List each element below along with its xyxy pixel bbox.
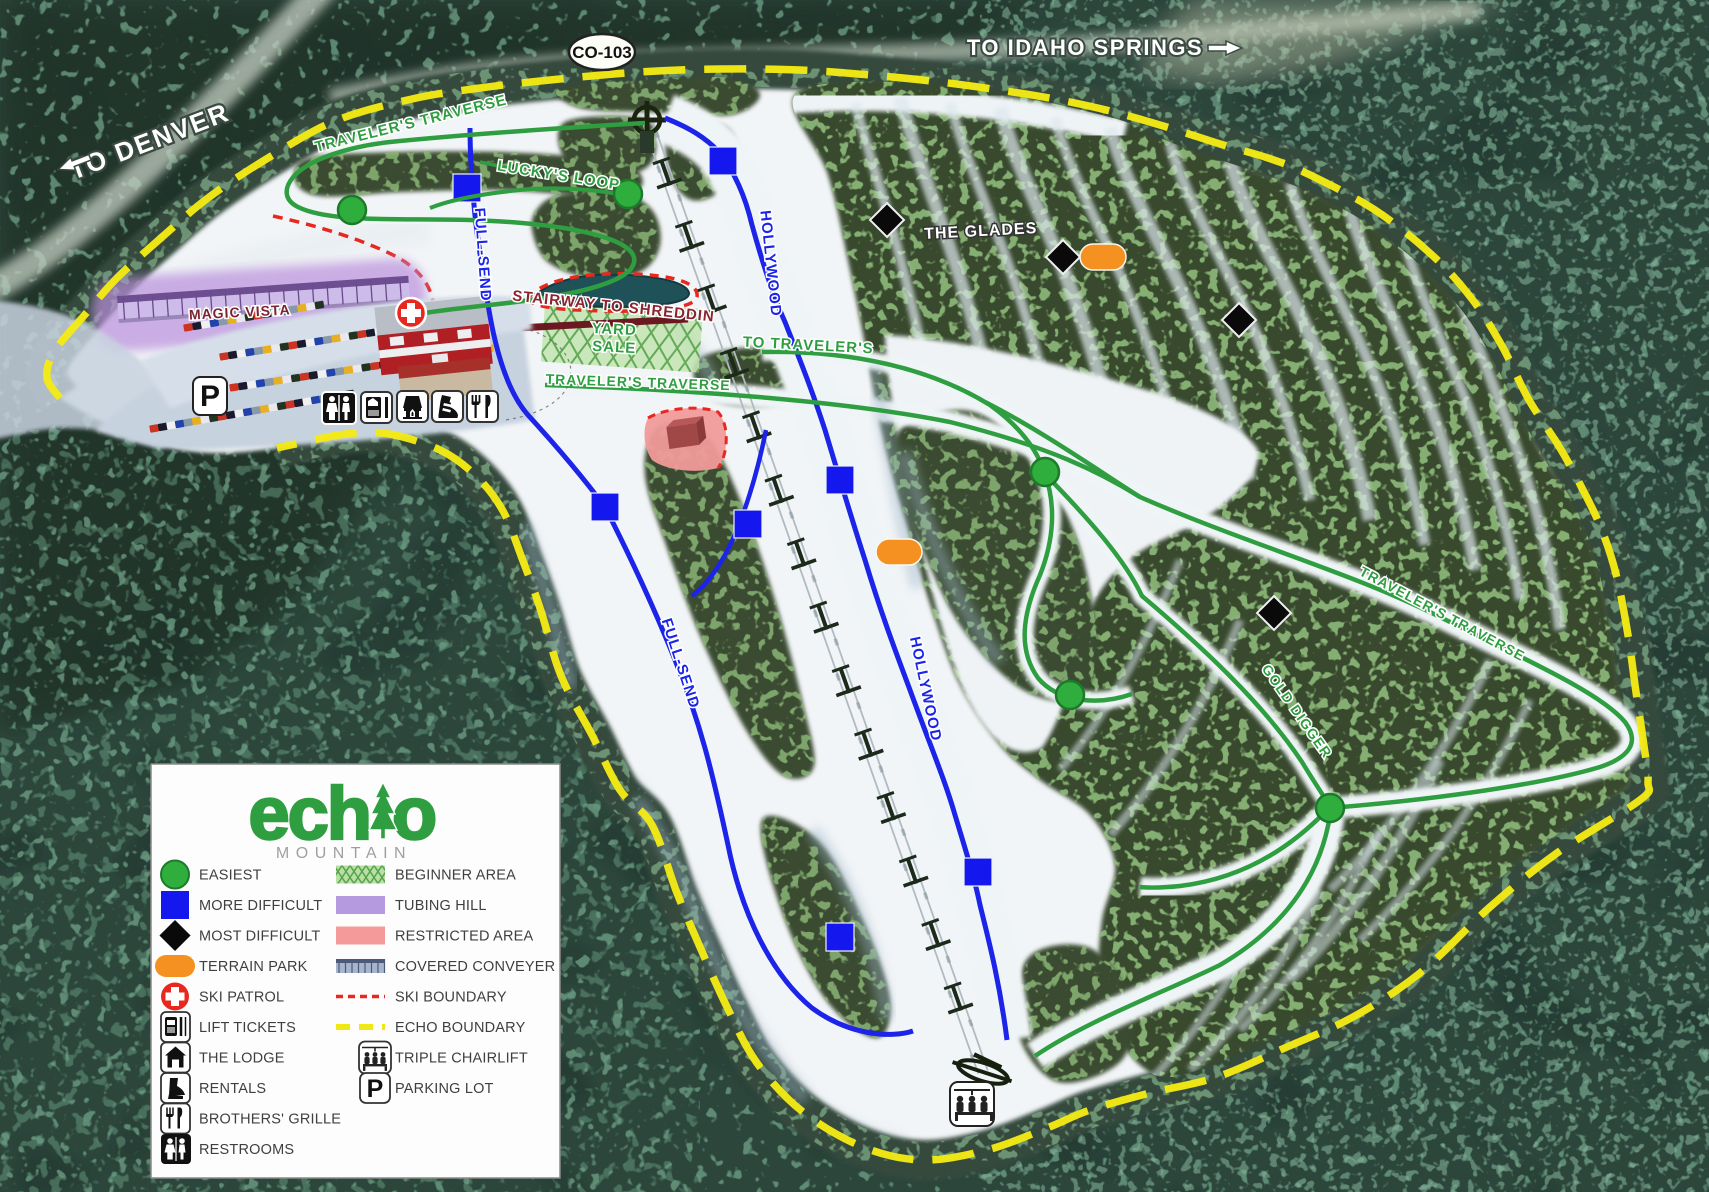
- svg-text:CO-103: CO-103: [572, 43, 632, 62]
- svg-text:TERRAIN PARK: TERRAIN PARK: [199, 959, 308, 975]
- svg-text:LIFT TICKETS: LIFT TICKETS: [199, 1020, 296, 1036]
- svg-text:MOST DIFFICULT: MOST DIFFICULT: [199, 929, 320, 945]
- svg-text:P: P: [367, 1075, 384, 1103]
- svg-text:PARKING LOT: PARKING LOT: [395, 1081, 494, 1097]
- svg-text:RESTRICTED AREA: RESTRICTED AREA: [395, 929, 533, 945]
- svg-text:ech: ech: [248, 772, 370, 855]
- svg-text:TUBING HILL: TUBING HILL: [395, 898, 487, 914]
- svg-text:RENTALS: RENTALS: [199, 1081, 266, 1097]
- svg-text:COVERED CONVEYER: COVERED CONVEYER: [395, 959, 555, 975]
- svg-text:MOUNTAIN: MOUNTAIN: [276, 845, 412, 862]
- svg-text:THE LODGE: THE LODGE: [199, 1051, 285, 1067]
- svg-text:MORE DIFFICULT: MORE DIFFICULT: [199, 898, 322, 914]
- svg-text:RESTROOMS: RESTROOMS: [199, 1142, 294, 1158]
- svg-text:EASIEST: EASIEST: [199, 868, 262, 884]
- svg-text:SKI BOUNDARY: SKI BOUNDARY: [395, 990, 507, 1006]
- svg-text:SALE: SALE: [592, 338, 637, 357]
- svg-text:TRIPLE CHAIRLIFT: TRIPLE CHAIRLIFT: [395, 1051, 528, 1067]
- svg-text:BROTHERS' GRILLE: BROTHERS' GRILLE: [199, 1112, 341, 1128]
- svg-text:YARD: YARD: [591, 320, 637, 339]
- svg-text:TO IDAHO SPRINGS: TO IDAHO SPRINGS: [967, 35, 1203, 60]
- svg-text:ECHO BOUNDARY: ECHO BOUNDARY: [395, 1020, 526, 1036]
- svg-text:o: o: [392, 772, 435, 855]
- svg-text:BEGINNER AREA: BEGINNER AREA: [395, 868, 516, 884]
- svg-text:SKI PATROL: SKI PATROL: [199, 990, 284, 1006]
- svg-text:P: P: [200, 380, 220, 413]
